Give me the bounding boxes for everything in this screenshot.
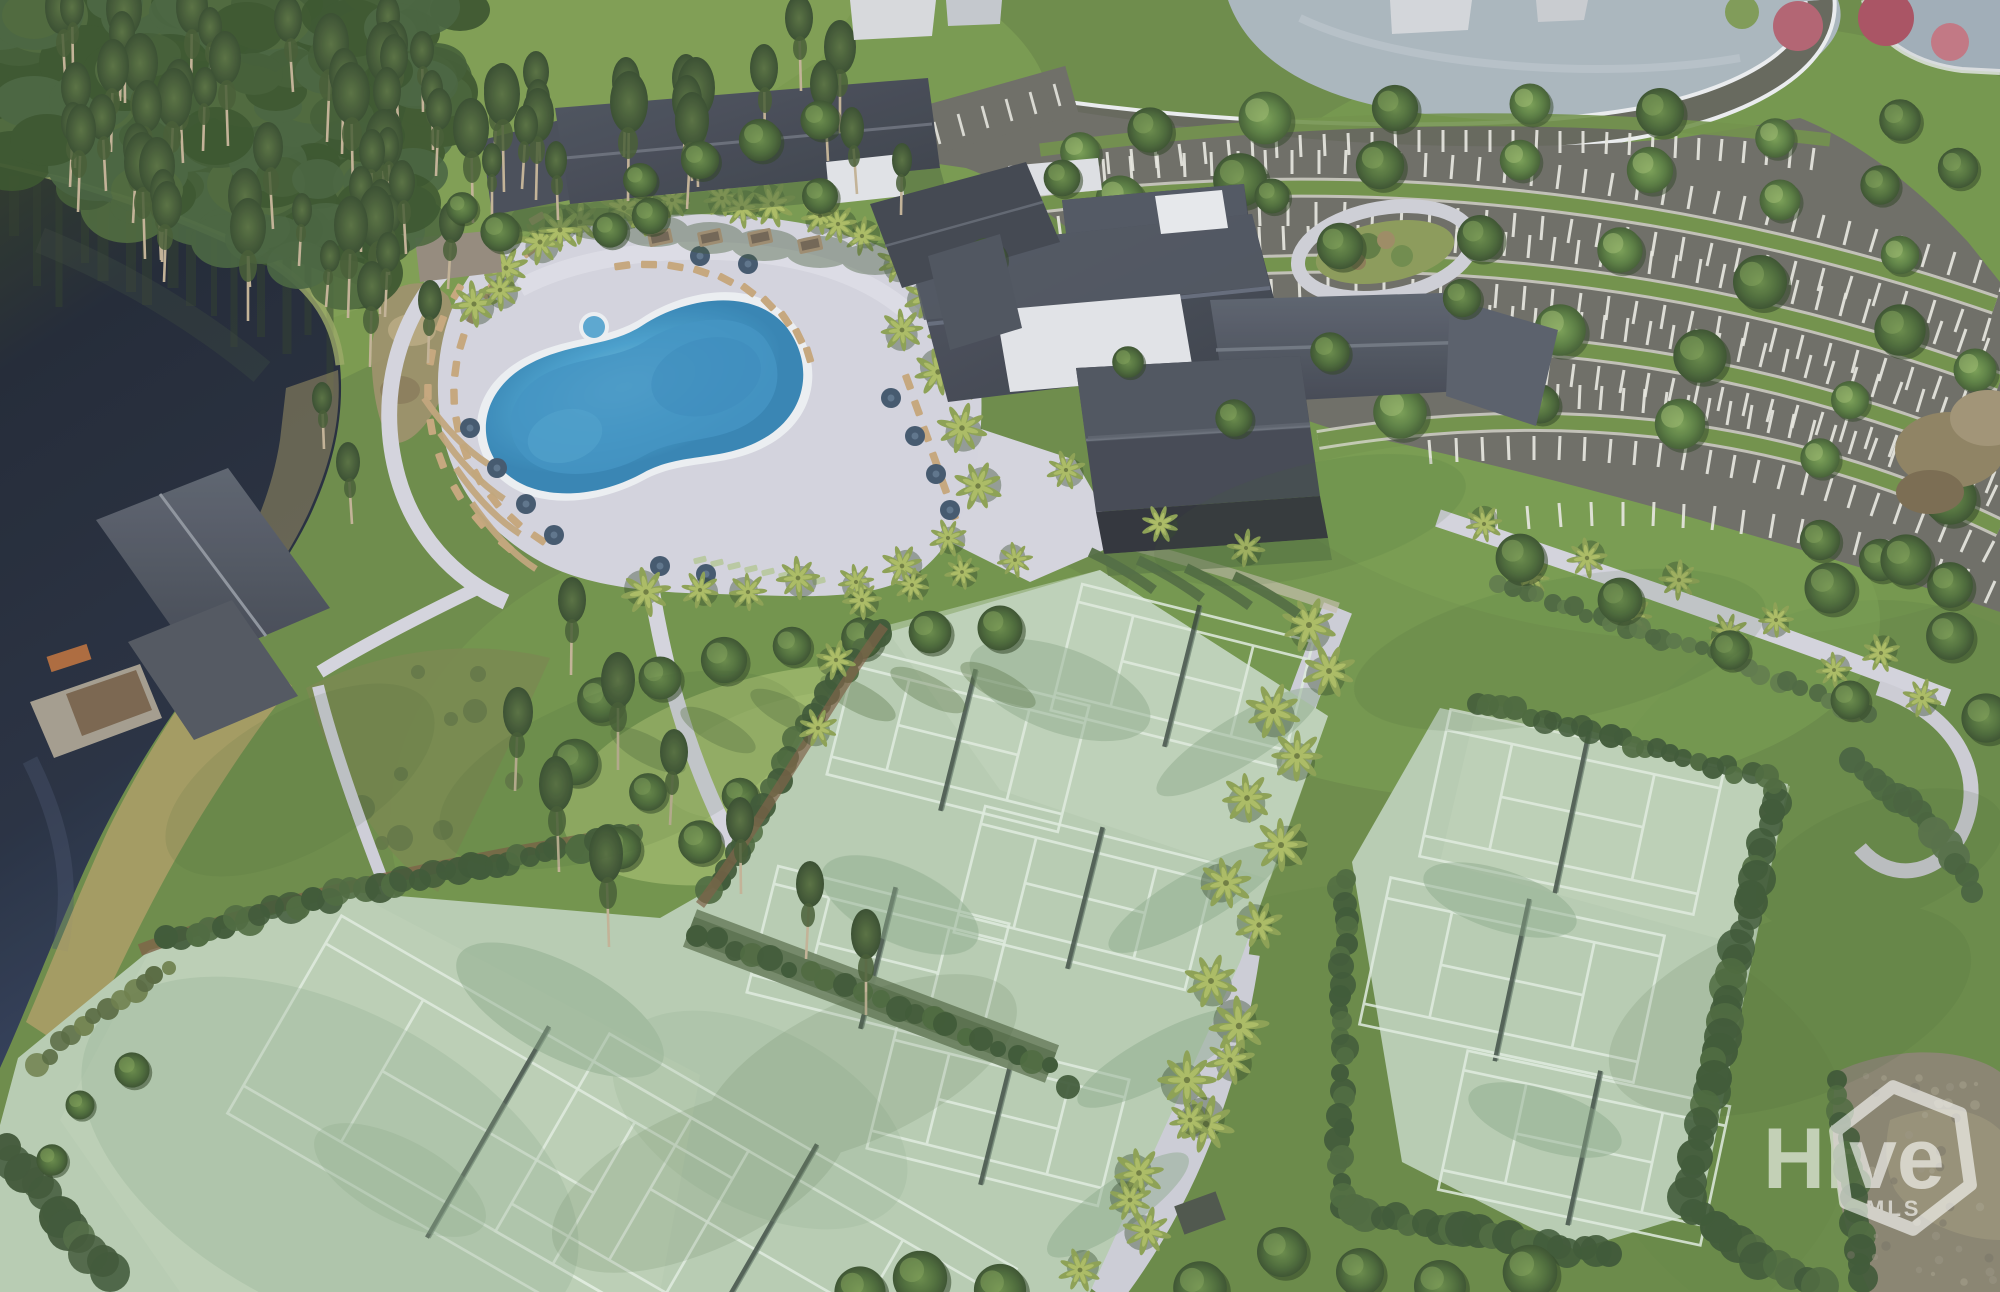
svg-text:MLS: MLS [1866,1196,1921,1221]
svg-text:Hive: Hive [1763,1111,1945,1207]
